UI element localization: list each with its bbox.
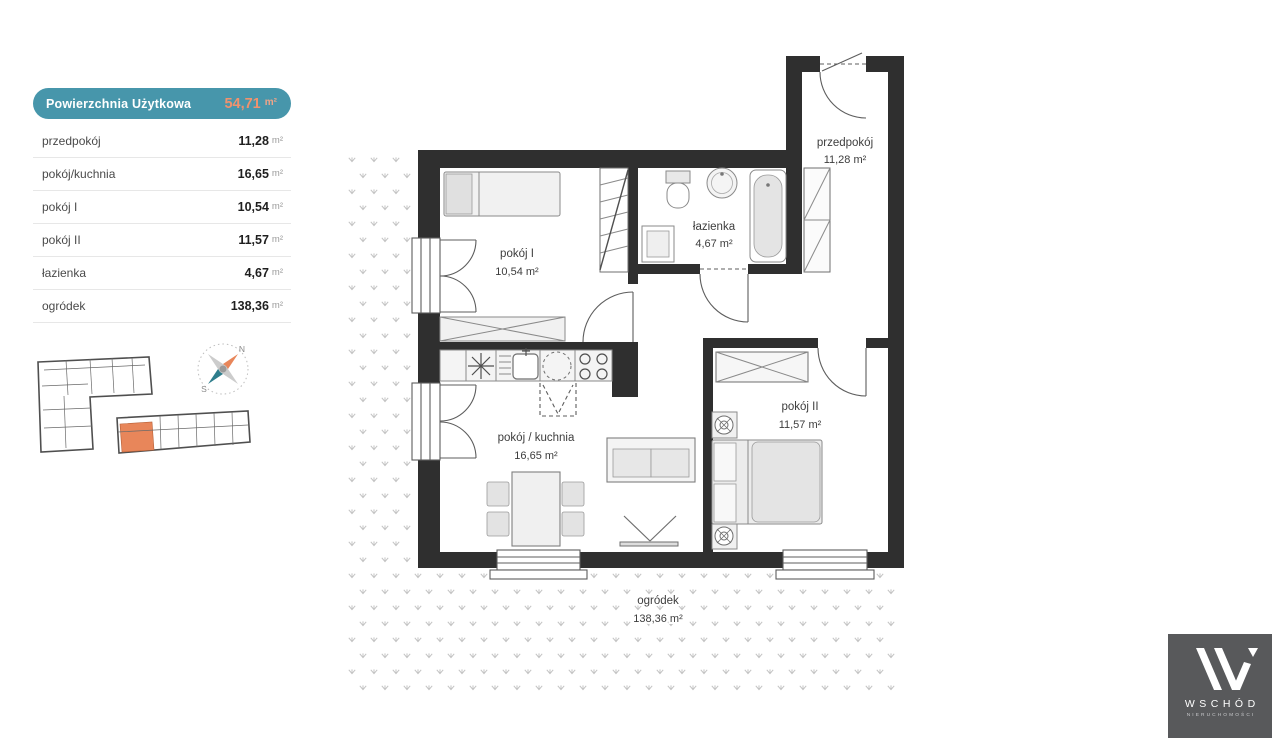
svg-text:11,28 m²: 11,28 m² bbox=[824, 154, 867, 166]
logo-w-icon bbox=[1168, 634, 1272, 696]
window-symbol-pokoj1-balcony bbox=[412, 238, 440, 313]
window-symbol-living-south bbox=[490, 550, 587, 579]
wardrobe-symbol-pokoj1 bbox=[440, 317, 565, 341]
pokoj2-door-swing-icon bbox=[818, 348, 866, 396]
compass-north-label: N bbox=[239, 344, 245, 354]
washing-machine-symbol bbox=[642, 226, 674, 262]
site-plan-minimap: N S bbox=[38, 344, 250, 453]
room-label-pokoj-kuchnia: pokój / kuchnia 16,65 m² bbox=[498, 432, 575, 462]
toilet-symbol bbox=[666, 171, 690, 208]
svg-text:10,54 m²: 10,54 m² bbox=[495, 266, 539, 278]
garden-label: ogródek 138,36 m² bbox=[633, 595, 683, 625]
room-label-pokoj1: pokój I 10,54 m² bbox=[495, 248, 539, 278]
brand-logo: WSCHÓD NIERUCHOMOŚCI bbox=[1168, 634, 1272, 738]
building-b-outline bbox=[117, 411, 250, 453]
pokoj1-balcony-door-swing-icon bbox=[440, 240, 476, 312]
fridge-projection-symbol bbox=[540, 383, 576, 416]
highlighted-unit bbox=[120, 422, 154, 452]
svg-text:przedpokój: przedpokój bbox=[817, 137, 873, 149]
window-symbol-pokoj2-south bbox=[776, 550, 874, 579]
living-balcony-door-swing-icon bbox=[440, 385, 476, 458]
bathtub-symbol bbox=[750, 170, 786, 262]
nightstand-symbol-bottom bbox=[712, 524, 737, 549]
pokoj1-door-swing-icon bbox=[583, 292, 633, 342]
room-label-pokoj2: pokój II 11,57 m² bbox=[779, 401, 822, 431]
svg-text:16,65 m²: 16,65 m² bbox=[514, 450, 558, 462]
sink-symbol bbox=[707, 168, 737, 198]
nightstand-symbol-top bbox=[712, 412, 737, 438]
svg-text:4,67 m²: 4,67 m² bbox=[695, 238, 733, 250]
tv-symbol bbox=[620, 516, 678, 546]
svg-text:pokój / kuchnia: pokój / kuchnia bbox=[498, 432, 575, 444]
bed-symbol-pokoj1 bbox=[444, 172, 560, 216]
svg-text:pokój II: pokój II bbox=[781, 401, 818, 413]
entry-door-swing-icon bbox=[820, 53, 866, 118]
svg-text:138,36 m²: 138,36 m² bbox=[633, 613, 683, 625]
dining-table-symbol bbox=[487, 472, 584, 546]
logo-sub-text: NIERUCHOMOŚCI bbox=[1185, 713, 1256, 718]
wardrobe-symbol-przedpokoj bbox=[804, 168, 830, 272]
svg-text:łazienka: łazienka bbox=[693, 221, 736, 233]
svg-text:ogródek: ogródek bbox=[637, 595, 679, 607]
sofa-symbol bbox=[607, 438, 695, 482]
window-symbol-living-balcony bbox=[412, 383, 440, 460]
bed-symbol-pokoj2 bbox=[712, 440, 822, 524]
room-label-przedpokoj: przedpokój 11,28 m² bbox=[817, 137, 873, 166]
bathroom-door-swing-icon bbox=[700, 269, 748, 322]
svg-text:pokój I: pokój I bbox=[500, 248, 534, 260]
svg-text:11,57 m²: 11,57 m² bbox=[779, 419, 822, 431]
wardrobe-symbol-pokoj2 bbox=[716, 352, 808, 382]
room-label-lazienka: łazienka 4,67 m² bbox=[693, 221, 736, 250]
floor-plan: przedpokój 11,28 m² łazienka 4,67 m² pok… bbox=[0, 0, 1280, 746]
compass-rose: N S bbox=[198, 344, 248, 394]
closet-shelves-symbol bbox=[600, 168, 628, 272]
logo-brand-text: WSCHÓD bbox=[1180, 698, 1259, 710]
compass-south-label: S bbox=[201, 384, 207, 394]
